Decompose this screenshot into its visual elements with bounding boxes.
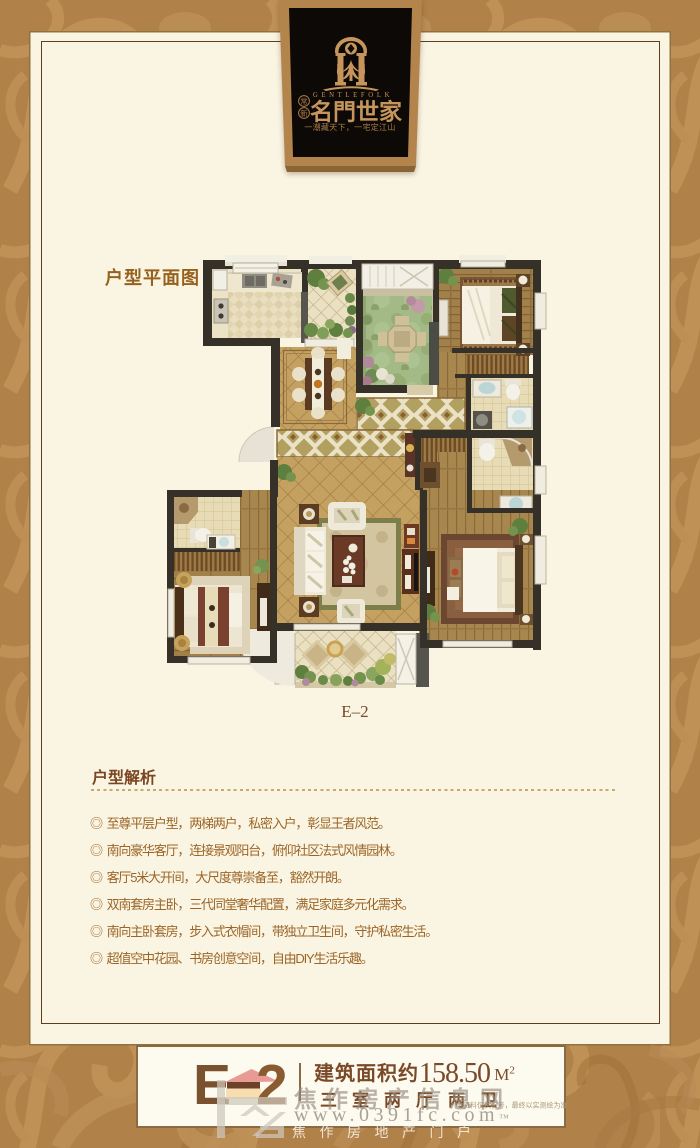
svg-text:名門世家: 名門世家: [310, 99, 402, 125]
svg-text:一潮藏天下，一宅定江山: 一潮藏天下，一宅定江山: [304, 122, 395, 132]
svg-text:常: 常: [300, 97, 308, 106]
svg-text:新: 新: [300, 108, 308, 118]
svg-text:GENTLEFOLK: GENTLEFOLK: [313, 92, 393, 99]
